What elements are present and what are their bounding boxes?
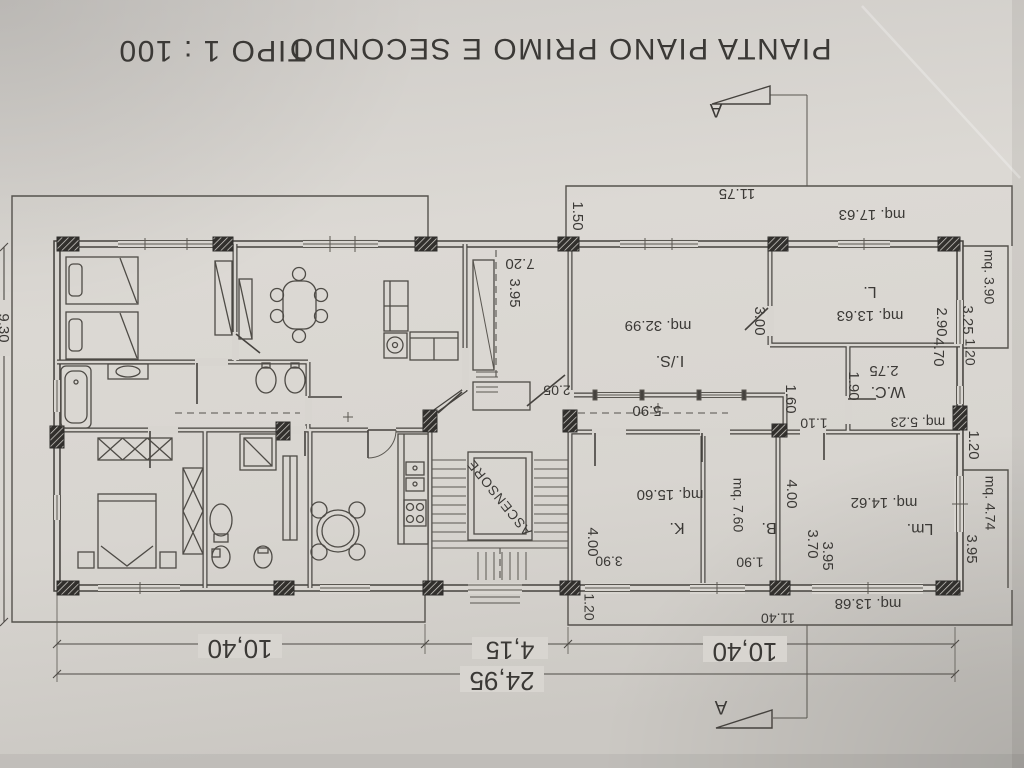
dim-wc-jamb: 1.60 — [782, 384, 799, 413]
dim-camera-1: 3.70 — [804, 529, 821, 558]
area-soggiorno: mq. 32.99 — [625, 317, 692, 334]
area-balcony-top: mq. 17.63 — [839, 206, 906, 223]
section-mark-top: A — [709, 99, 722, 120]
dim-wc-wall: 4.70 — [930, 337, 947, 366]
dim-landing-depth: 3.95 — [506, 278, 523, 307]
area-balcony-bottom: mq. 13.68 — [835, 595, 902, 612]
room-label-salotto: L. — [863, 283, 876, 300]
room-label-wc: W.C. — [871, 383, 906, 400]
dim-corridor: 5.90 — [632, 402, 661, 419]
room-label-camera: Lm. — [907, 520, 934, 537]
section-mark-bottom: A — [714, 696, 727, 717]
dim-cucina-window: 3.90 — [595, 553, 622, 569]
dim-balc-rt-depth: 1.20 — [962, 338, 978, 365]
dim-cucina-depth: 4.00 — [584, 527, 601, 556]
dim-total-left: 10,40 — [207, 634, 272, 664]
room-label-bagno: B. — [761, 519, 776, 536]
dim-balc-rt-length: 3.25 — [959, 305, 976, 334]
dim-balcony-bottom-length: 11.40 — [761, 610, 795, 626]
dim-bagno-window: 1.90 — [736, 554, 763, 570]
dim-total-overall: 24,95 — [469, 666, 534, 696]
floor-plan-photo: PIANTA PIANO PRIMO E SECONDO TIPO 1 : 10… — [0, 0, 1024, 768]
area-cucina: mq. 15.60 — [637, 486, 704, 503]
area-bagno: mq. 7.60 — [730, 478, 746, 533]
dim-wc-door: 1.10 — [800, 415, 827, 431]
floor-plan-drawing: PIANTA PIANO PRIMO E SECONDO TIPO 1 : 10… — [0, 0, 1024, 768]
page-title-scale: TIPO 1 : 100 — [118, 34, 306, 67]
dim-balcony-bottom-depth: 1.20 — [581, 593, 597, 620]
dim-salotto-side: 2.90 — [933, 307, 950, 336]
dim-total-mid: 4,15 — [486, 635, 535, 663]
dim-balcony-top-depth: 1.50 — [569, 201, 586, 230]
dim-wc-width: 2.75 — [869, 362, 898, 379]
dim-landing-door: 2.05 — [543, 382, 570, 398]
dim-bagno-depth: 4.00 — [783, 479, 800, 508]
dim-balcony-top-length: 11.75 — [719, 185, 755, 202]
area-camera: mq. 14.62 — [851, 494, 918, 511]
dim-camera-2: 3.95 — [819, 541, 836, 570]
dim-landing-width: 7.20 — [505, 255, 534, 272]
room-label-soggiorno: I./S. — [656, 352, 684, 369]
page-title: PIANTA PIANO PRIMO E SECONDO — [288, 32, 831, 65]
dim-balc-rb-offset: 1.20 — [965, 430, 982, 459]
dim-total-right: 10,40 — [712, 637, 777, 667]
dim-balc-rb-length: 3.95 — [963, 534, 980, 563]
area-salotto: mq. 13.63 — [837, 307, 904, 324]
area-balc-rt: mq. 3.90 — [981, 250, 997, 305]
room-label-cucina: K. — [669, 519, 684, 536]
dim-soggiorno-wall: 3.00 — [751, 306, 768, 335]
area-wc: mq. 5.23 — [891, 414, 946, 430]
area-balc-rb: mq. 4.74 — [982, 476, 998, 531]
dim-wc-depth: 1.90 — [845, 371, 862, 400]
dim-left-depth: 9,30 — [0, 313, 12, 342]
